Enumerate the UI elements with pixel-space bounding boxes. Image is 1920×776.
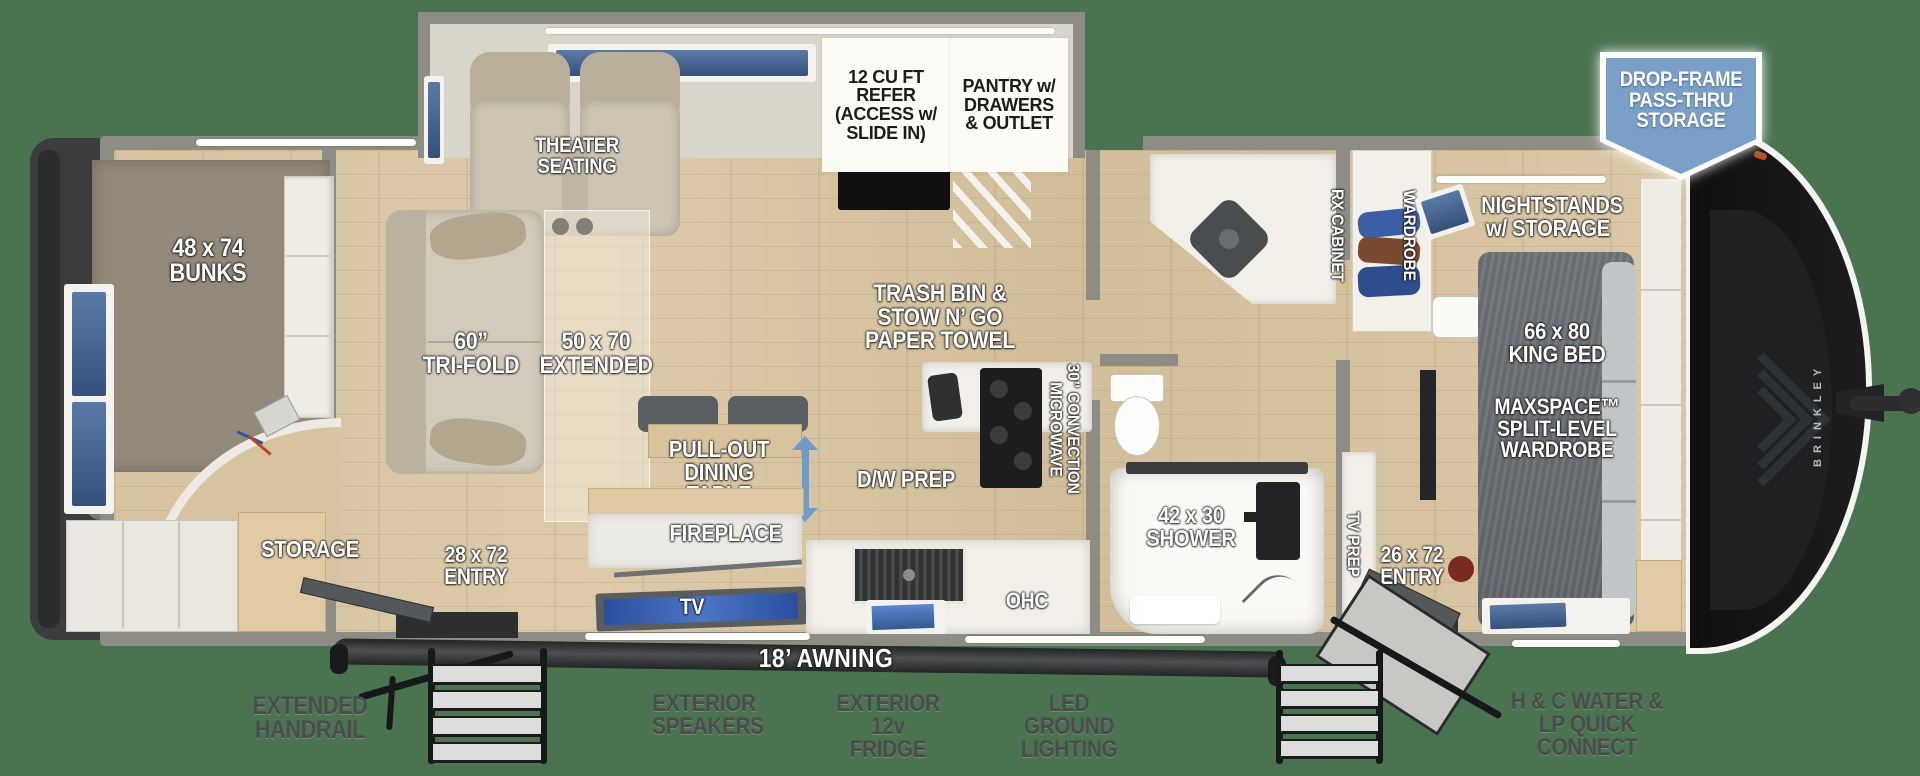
hitch-jack-foot: [1898, 388, 1920, 414]
shower-seat: [1130, 596, 1220, 624]
body-notch: [1085, 124, 1143, 150]
pantry-drawers: [953, 172, 1031, 248]
stairs-left-rail-b: [540, 648, 547, 764]
bunk-window: [64, 284, 114, 514]
bunk-cabinet-line1: [122, 522, 124, 628]
floorplan-scene: REAR STORAGE COMPARTMENT THEATER SEATING…: [0, 0, 1920, 776]
bedroom-tan-cabinet: [1636, 560, 1682, 632]
entry-left-label: 28 x 72 ENTRY: [423, 544, 529, 587]
rx-cabinet-label: RX CABINET: [1318, 157, 1346, 313]
bunks-label: 48 x 74 BUNKS: [148, 236, 268, 285]
wall-light-strip-5: [1512, 640, 1620, 647]
trash-label: TRASH BIN & STOW N’ GO PAPER TOWEL: [850, 282, 1030, 353]
bunk-cabinet-line2: [178, 522, 180, 628]
slide-side-window: [424, 76, 444, 164]
shower-glass-track: [1126, 462, 1308, 474]
maxspace-label: MAXSPACE™ SPLIT-LEVEL WARDROBE: [1491, 396, 1623, 461]
ohc-label: OHC: [989, 590, 1065, 612]
stairs-right-step-4: [1281, 739, 1378, 759]
bedroom-bottom-window: [1482, 598, 1630, 634]
bunk-closet: [284, 176, 334, 418]
extended-handrail-label: EXTENDED HANDRAIL: [252, 694, 369, 742]
fireplace-cabinet-top: [588, 488, 804, 516]
wall-light-strip-1: [196, 139, 416, 146]
extended-label: 50 x 70 EXTENDED: [540, 330, 653, 377]
bunk-cabinets-white: [66, 520, 238, 632]
shower-label: 42 x 30 SHOWER: [1139, 504, 1243, 549]
drop-frame-badge: DROP-FRAME PASS-THRU STORAGE: [1600, 52, 1762, 180]
bedroom-tv: [1420, 370, 1436, 500]
kitchen-window-blinds: [852, 546, 966, 604]
stairs-right-step-1: [1281, 664, 1378, 684]
microwave-label: 30” CONVECTION MICROWAVE: [1032, 351, 1082, 507]
nightstands-label: NIGHTSTANDS w/ STORAGE: [1481, 194, 1615, 239]
hc-water-label: H & C WATER & LP QUICK CONNECT: [1497, 690, 1678, 759]
stairs-right-step-2: [1281, 689, 1378, 709]
exterior-fridge-window: [866, 600, 946, 634]
shower-fixture: [1256, 482, 1300, 560]
trash-bin: [927, 372, 963, 422]
stairs-left-step-4: [433, 742, 541, 763]
wall-light-strip-4: [965, 636, 1205, 643]
refrigerator: [838, 166, 950, 210]
dw-prep-label: D/W PREP: [851, 468, 960, 491]
toilet-bowl: [1114, 396, 1160, 456]
wall-light-strip-2: [1436, 176, 1606, 183]
pantry-label: PANTRY w/ DRAWERS & OUTLET: [950, 38, 1068, 172]
stairs-right-step-3: [1281, 714, 1378, 734]
stairs-left-step-2: [433, 690, 541, 711]
bunk-closet-line2: [286, 335, 330, 337]
bedroom-ac-unit: [1432, 296, 1482, 338]
rear-bumper: [38, 150, 60, 628]
refer-label: 12 CU FT REFER (ACCESS w/ SLIDE IN): [822, 38, 951, 172]
stairs-left-step-3: [433, 716, 541, 737]
exterior-speakers-label: EXTERIOR SPEAKERS: [652, 692, 753, 738]
wall-bath-stub: [1100, 354, 1178, 366]
tv-label: TV: [669, 596, 715, 618]
wall-light-strip-3: [585, 633, 810, 640]
awning-endcap-left: [330, 644, 348, 674]
awning-label: 18’ AWNING: [747, 646, 905, 671]
king-bed-label: 66 x 80 KING BED: [1502, 320, 1613, 365]
stairs-left-step-1: [433, 664, 541, 685]
theater-seating-label: THEATER SEATING: [499, 136, 656, 177]
led-lighting-label: LED GROUND LIGHTING: [1011, 692, 1126, 761]
fireplace-label: FIREPLACE: [670, 522, 781, 545]
bunk-storage-panel: [238, 512, 326, 632]
wall-kitchen-bath-upper: [1086, 150, 1100, 300]
handrail-left-post: [386, 676, 396, 730]
bunk-closet-line1: [286, 255, 330, 257]
trifold-label: 60” TRI-FOLD: [412, 330, 530, 377]
storage-label: STORAGE: [257, 538, 363, 561]
drop-frame-badge-text: DROP-FRAME PASS-THRU STORAGE: [1615, 70, 1747, 132]
exterior-fridge-label: EXTERIOR 12v FRIDGE: [835, 692, 942, 761]
brand-wordmark: BRINKLEY: [1812, 300, 1830, 530]
wardrobe-label: WARDROBE: [1390, 155, 1418, 316]
slide-light-strip: [545, 28, 1055, 34]
